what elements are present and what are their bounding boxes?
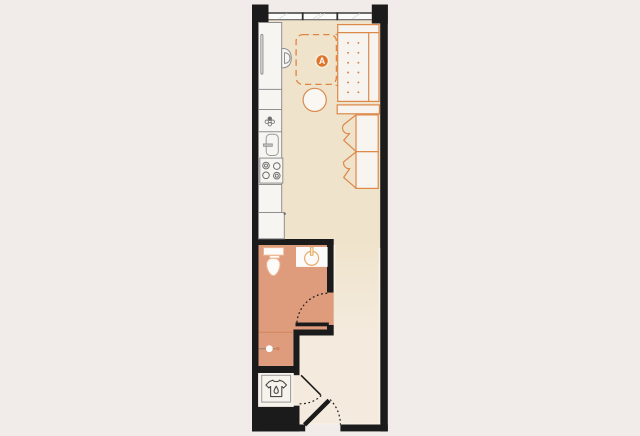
svg-text:A: A: [319, 56, 326, 66]
